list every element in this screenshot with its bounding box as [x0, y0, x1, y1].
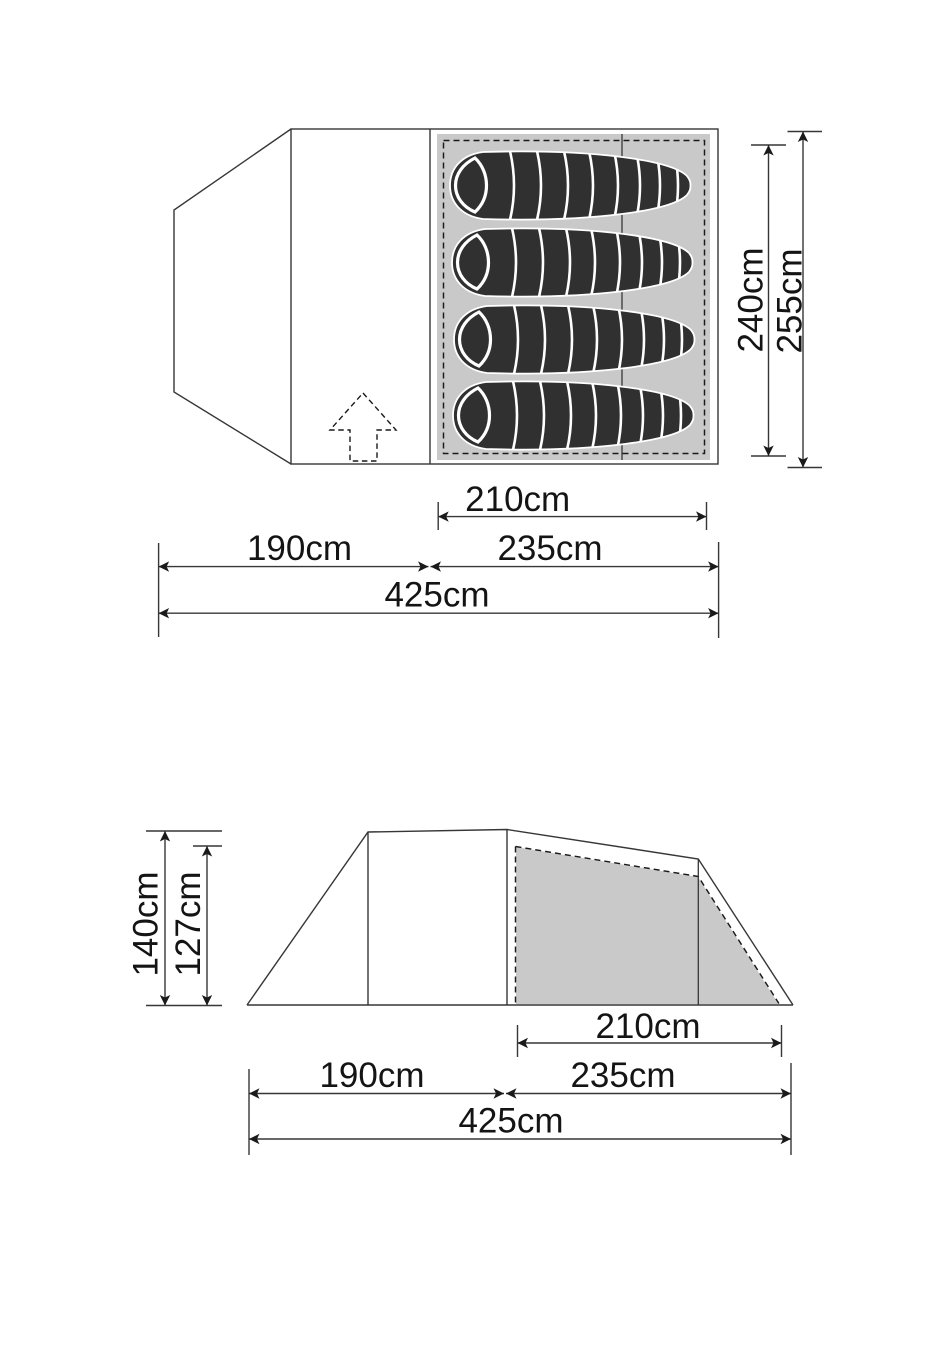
- svg-text:235cm: 235cm: [570, 1056, 675, 1095]
- svg-text:425cm: 425cm: [384, 576, 489, 615]
- svg-text:255cm: 255cm: [771, 248, 810, 353]
- svg-text:210cm: 210cm: [465, 480, 570, 519]
- svg-text:210cm: 210cm: [595, 1007, 700, 1046]
- svg-text:235cm: 235cm: [497, 529, 602, 568]
- svg-text:190cm: 190cm: [247, 529, 352, 568]
- svg-text:190cm: 190cm: [319, 1056, 424, 1095]
- svg-text:425cm: 425cm: [458, 1102, 563, 1141]
- svg-text:127cm: 127cm: [169, 871, 208, 976]
- svg-text:240cm: 240cm: [732, 247, 771, 352]
- svg-text:140cm: 140cm: [127, 871, 166, 976]
